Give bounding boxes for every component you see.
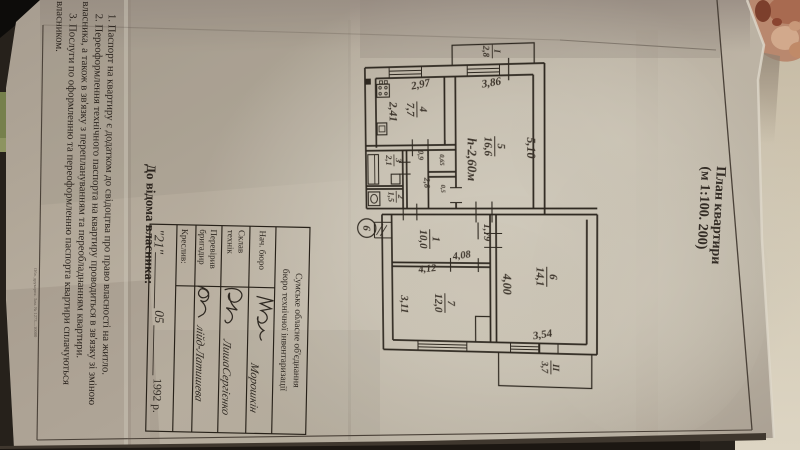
svg-text:h-2,60м: h-2,60м (464, 138, 479, 181)
svg-text:0,65: 0,65 (438, 154, 445, 165)
svg-text:2,1: 2,1 (384, 154, 394, 166)
svg-text:Обл. друкарня. Зам. № 1273—100: Обл. друкарня. Зам. № 1273—10000 (33, 268, 38, 338)
svg-text:7: 7 (445, 300, 457, 307)
svg-text:6: 6 (546, 274, 559, 280)
svg-text:1,5: 1,5 (386, 192, 396, 203)
svg-text:7,7: 7,7 (404, 103, 416, 118)
svg-text:2,8: 2,8 (481, 44, 491, 57)
svg-text:0,9: 0,9 (416, 150, 425, 160)
svg-text:4,00: 4,00 (500, 273, 514, 296)
svg-text:3,11: 3,11 (398, 294, 410, 313)
svg-text:14,1: 14,1 (533, 267, 546, 286)
svg-text:5,10: 5,10 (524, 137, 538, 159)
svg-text:12,0: 12,0 (432, 293, 444, 312)
svg-text:1: 1 (429, 236, 441, 241)
svg-text:2,8: 2,8 (422, 176, 432, 188)
svg-text:5: 5 (494, 143, 506, 149)
svg-text:II: II (551, 363, 562, 373)
svg-text:3,86: 3,86 (480, 75, 502, 91)
svg-text:3: 3 (394, 157, 404, 163)
svg-text:3,7: 3,7 (540, 360, 551, 374)
svg-text:4,08: 4,08 (451, 250, 472, 264)
svg-text:2,97: 2,97 (409, 77, 432, 93)
svg-text:2,41: 2,41 (386, 101, 398, 122)
svg-text:I: I (492, 48, 502, 54)
svg-text:3,54: 3,54 (531, 328, 554, 343)
svg-text:6: 6 (360, 225, 372, 230)
svg-text:10,0: 10,0 (417, 230, 429, 249)
svg-text:16,6: 16,6 (481, 137, 493, 157)
svg-text:4: 4 (417, 105, 429, 112)
svg-text:0,5: 0,5 (439, 185, 446, 193)
svg-text:4,12: 4,12 (417, 263, 437, 276)
svg-text:2: 2 (396, 194, 406, 200)
svg-text:1,79: 1,79 (482, 224, 493, 242)
